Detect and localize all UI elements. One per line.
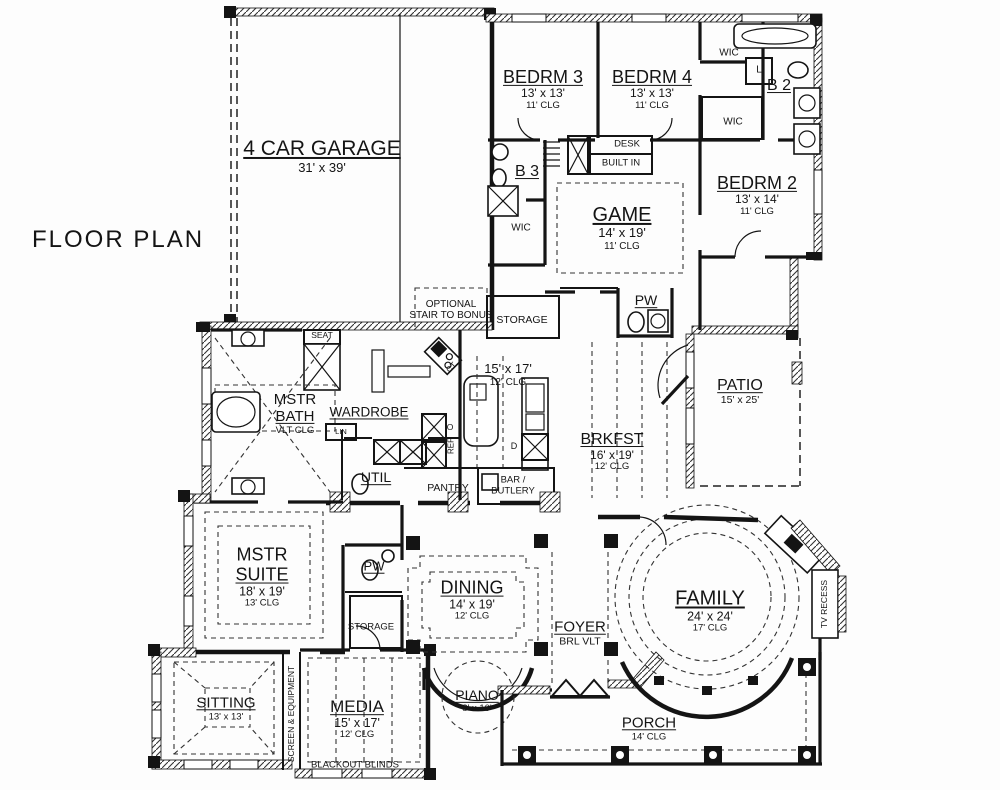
floorplan-drawing	[0, 0, 1000, 790]
porch-column-icon	[798, 746, 816, 764]
room-label-family: FAMILY 24' x 24' 17' CLG	[675, 587, 745, 634]
sink-icon	[794, 88, 820, 118]
room-label-game: GAME 14' x 19' 11' CLG	[593, 204, 652, 252]
room-label-patio: PATIO 15' x 25'	[717, 377, 763, 407]
room-label-dining: DINING 14' x 19' 12' CLG	[441, 578, 504, 623]
porch-column-icon	[798, 658, 816, 676]
room-label-mstr-suite: MSTR SUITE 18' x 19' 13' CLG	[235, 545, 288, 610]
wic-label: WIC	[719, 47, 738, 58]
optional-stair-label: OPTIONAL STAIR TO BONUS	[409, 299, 492, 321]
column-icon	[604, 534, 618, 548]
tv-recess-label: TV RECESS	[820, 580, 830, 628]
room-label-bedrm4: BEDRM 4 13' x 13' 11' CLG	[612, 67, 692, 111]
room-label-porch: PORCH 14' CLG	[622, 715, 676, 742]
room-label-sitting: SITTING 13' x 13'	[196, 695, 255, 722]
column-icon	[534, 534, 548, 548]
room-label-bedrm2: BEDRM 2 13' x 14' 11' CLG	[717, 173, 797, 217]
porch-column-icon	[704, 746, 722, 764]
toilet-icon	[628, 312, 644, 332]
column-icon	[604, 642, 618, 656]
bar-butler-label: BAR / BUTLERY	[491, 475, 535, 496]
patio-boundary	[700, 338, 802, 486]
closet-rod-icon	[388, 366, 430, 377]
desk-label: DESK	[614, 140, 640, 151]
floor-plan-sheet: FLOOR PLAN 4 CAR GARAGE 31' x 39' BEDRM …	[0, 0, 1000, 790]
seat-label: SEAT	[311, 331, 333, 341]
room-label-kitchen: 15' x 17' 12' CLG	[484, 362, 532, 388]
room-label-brkfst: BRKFST 16' x 19' 12' CLG	[580, 431, 643, 473]
room-label-pw: PW	[635, 293, 658, 309]
lin-label: LIN	[335, 428, 347, 436]
foyer	[534, 534, 664, 697]
storage-label: STORAGE	[496, 315, 547, 327]
room-label-garage: 4 CAR GARAGE 31' x 39'	[243, 137, 401, 175]
linen-l-label: L	[756, 64, 762, 75]
sheet-title: FLOOR PLAN	[32, 226, 204, 254]
sink-icon	[794, 124, 820, 154]
oven-label: O	[447, 423, 454, 433]
built-in-label: BUILT IN	[602, 159, 640, 170]
brkfst	[592, 334, 694, 498]
dishwasher-label: D	[511, 441, 518, 451]
column-icon	[534, 642, 548, 656]
pantry-label: PANTRY	[427, 483, 469, 495]
closet-rod-icon	[372, 350, 384, 392]
storage-label: STORAGE	[348, 623, 394, 634]
sink-icon	[492, 144, 508, 160]
room-label-foyer: FOYER BRL VLT	[554, 620, 606, 649]
room-label-mstr-bath: MSTR BATH VLT CLG	[274, 392, 317, 436]
tub-icon	[212, 392, 260, 432]
blackout-blinds-label: BLACKOUT BLINDS	[311, 761, 399, 772]
wic-label: WIC	[723, 116, 742, 127]
porch-column-icon	[518, 746, 536, 764]
room-label-b3: B 3	[515, 163, 539, 181]
toilet-icon	[788, 62, 808, 78]
room-label-bedrm3: BEDRM 3 13' x 13' 11' CLG	[503, 67, 583, 111]
room-label-piano: PIANO 8' x 10'	[455, 688, 499, 714]
porch-column-icon	[611, 746, 629, 764]
room-label-b2: B 2	[767, 77, 791, 95]
front-door-icon	[580, 680, 608, 696]
screen-equipment-label: SCREEN & EQUIPMENT	[287, 666, 297, 762]
front-door-icon	[552, 680, 580, 696]
toilet-icon	[492, 169, 506, 187]
wic-label: WIC	[511, 222, 530, 233]
room-label-util: UTIL	[361, 470, 391, 486]
room-label-media: MEDIA 15' x 17' 12' CLG	[330, 697, 384, 741]
room-label-wardrobe: WARDROBE	[329, 404, 408, 419]
porch	[498, 652, 822, 766]
room-label-pw-2: PW	[364, 560, 385, 575]
ref-label: REF	[448, 438, 457, 454]
